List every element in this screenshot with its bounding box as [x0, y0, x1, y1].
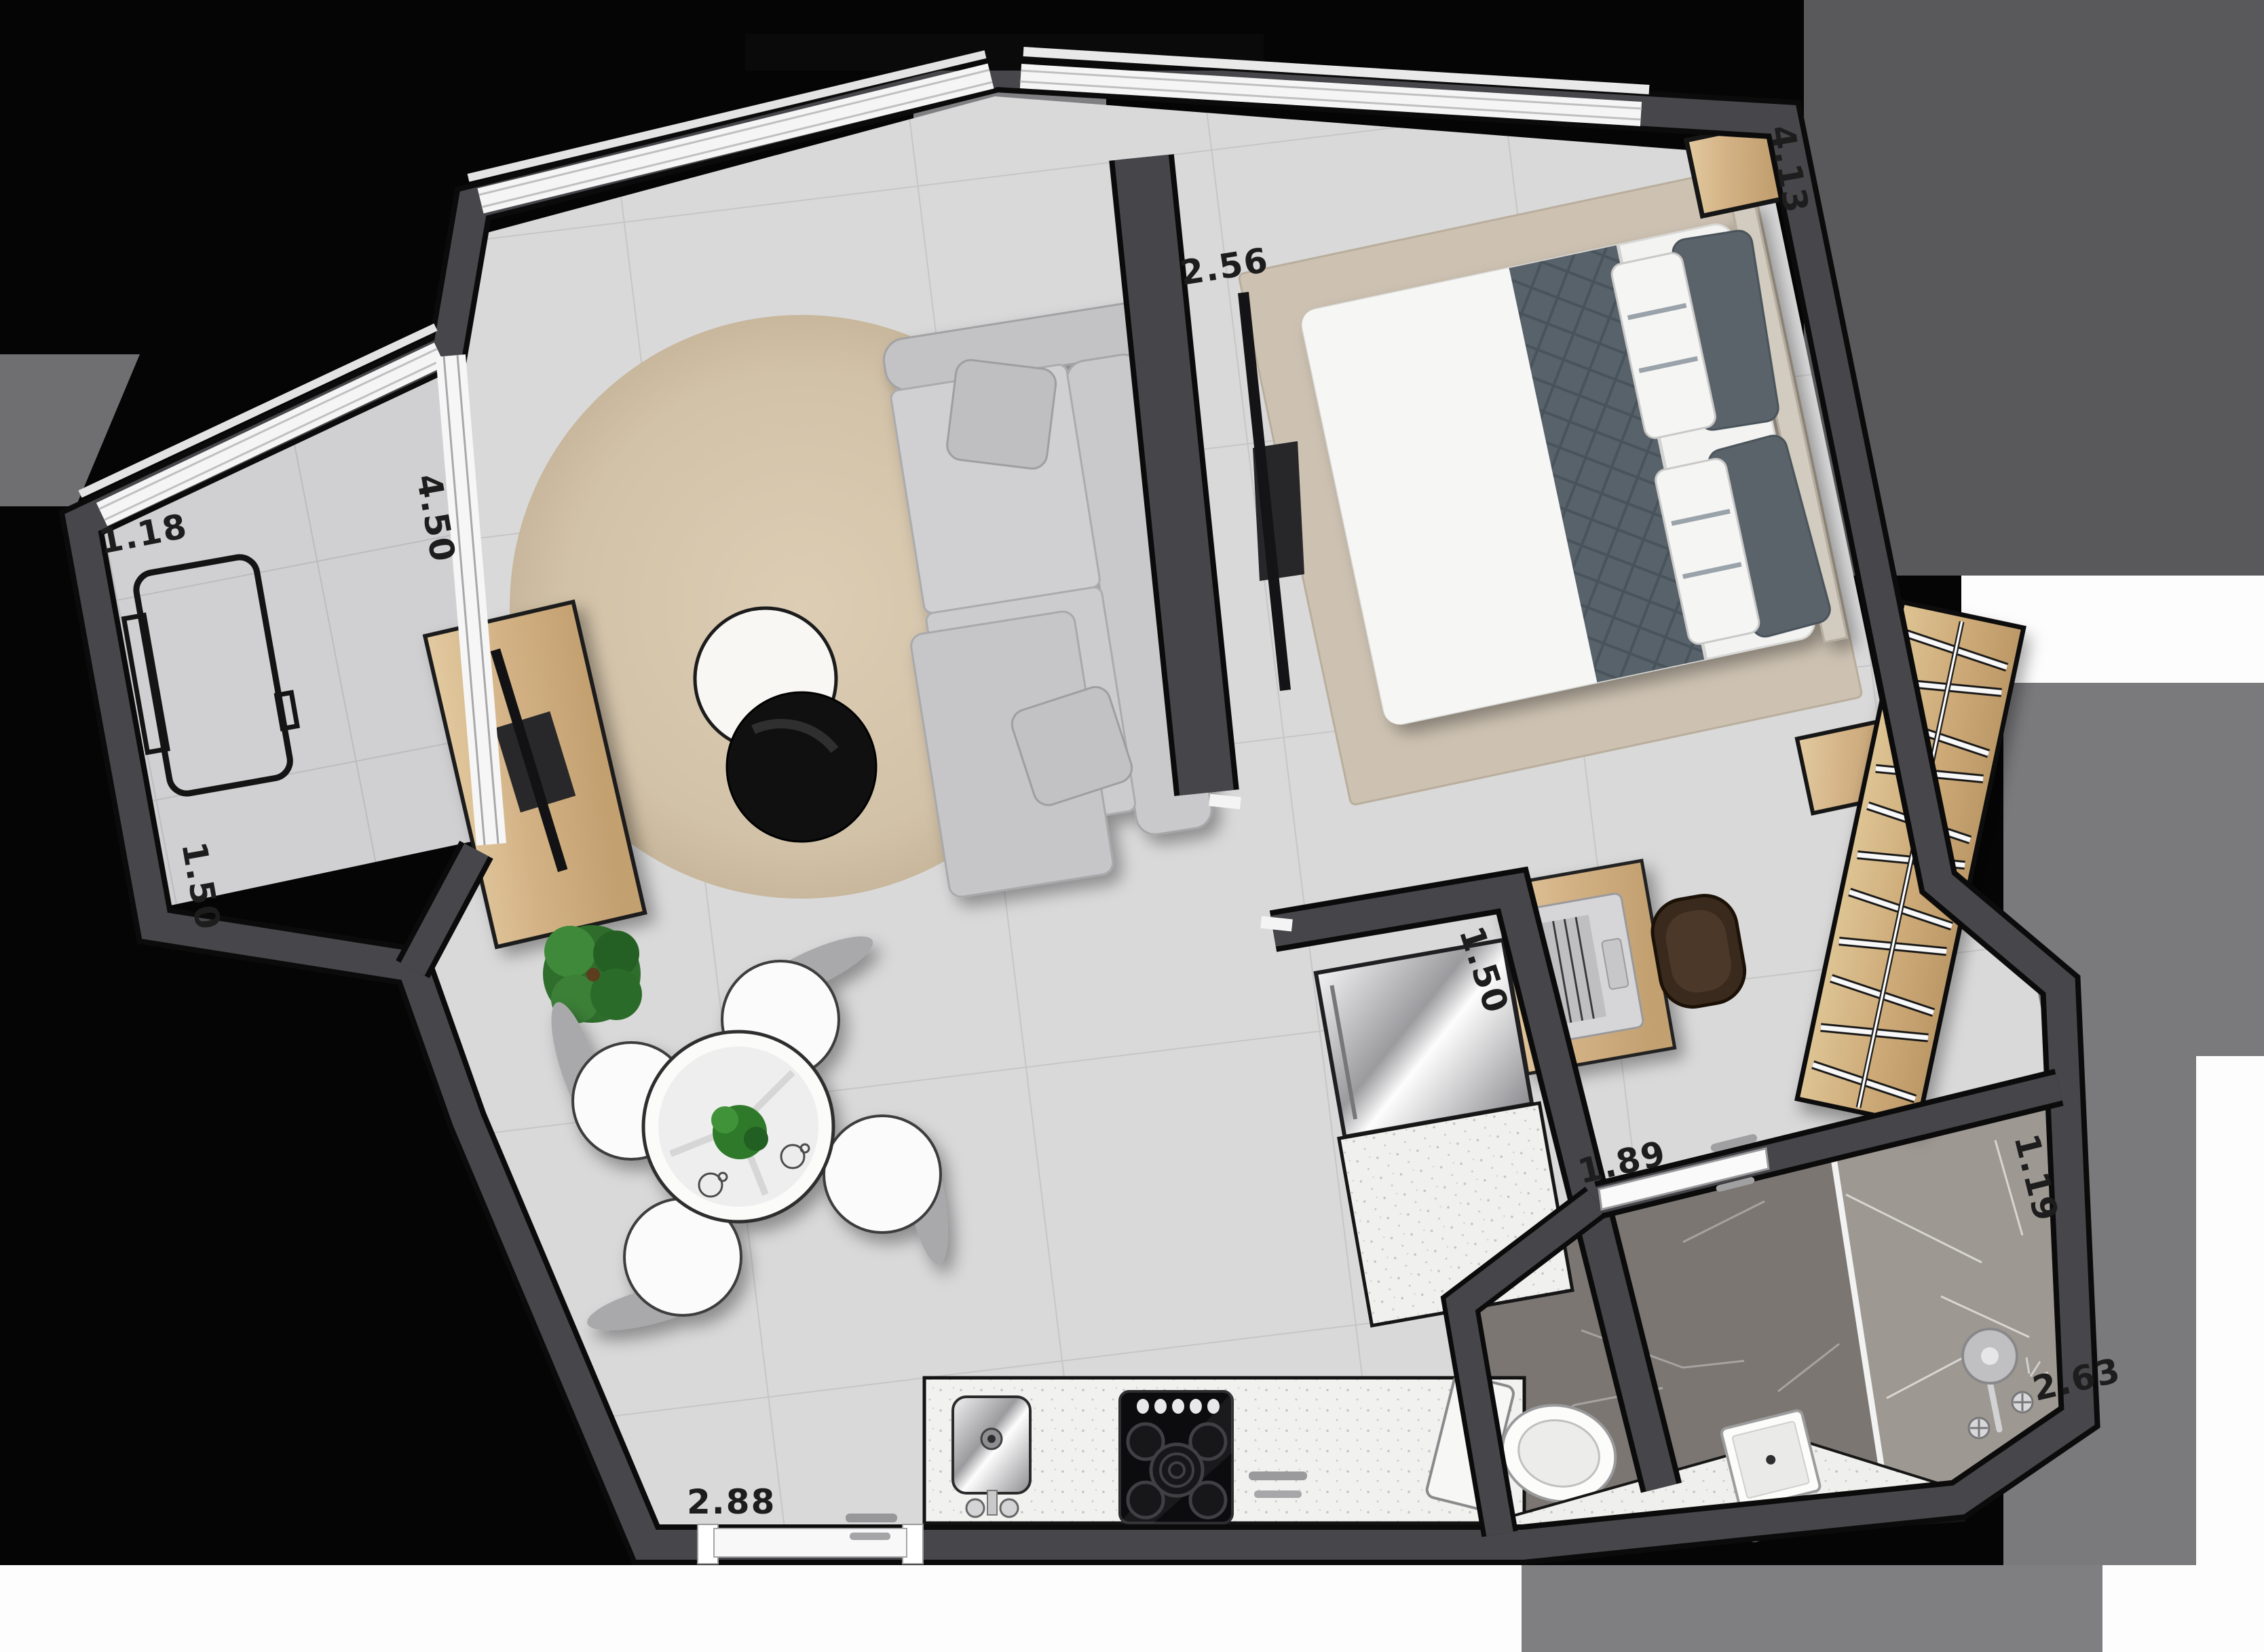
background-patch-bottom-gray: [1522, 1565, 2102, 1652]
cooktop-icon: [1120, 1391, 1232, 1523]
background-patch-right-white2: [2196, 1056, 2264, 1565]
label-kitchen-width: 2.88: [687, 1482, 776, 1522]
sofa-pillow: [945, 358, 1057, 470]
faucet: [987, 1490, 997, 1515]
floor-plan-svg: 1.18 4.50 1.50 2.56 4.13 1.50 1.89 1.19 …: [0, 0, 2264, 1652]
coffee-table-black: [727, 692, 876, 842]
floor-plan-stage: 1.18 4.50 1.50 2.56 4.13 1.50 1.89 1.19 …: [0, 0, 2264, 1652]
door-handle: [846, 1514, 897, 1522]
dining-table-icon: [643, 1032, 833, 1222]
kitchen-counter-icon: [924, 1378, 1524, 1523]
